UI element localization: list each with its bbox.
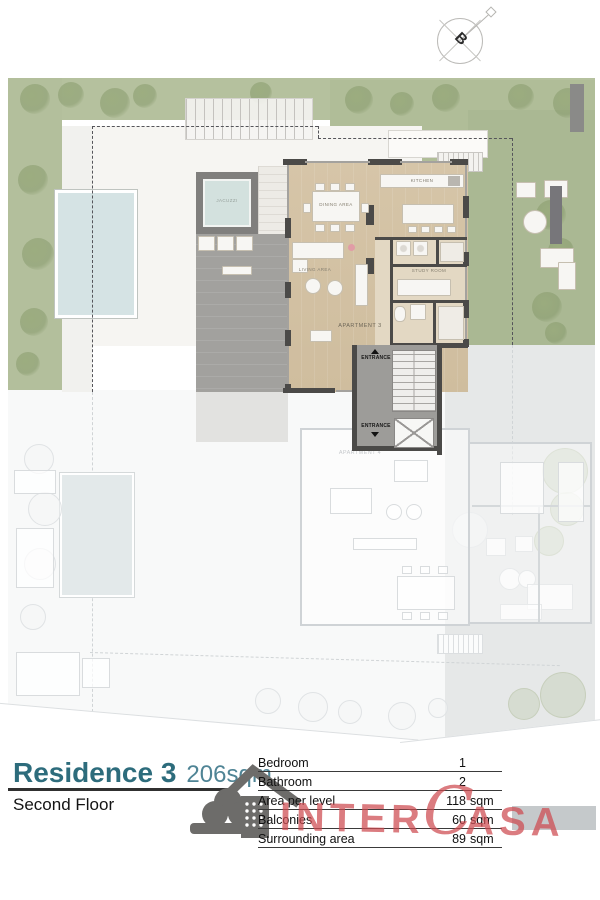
accent-pillow [348, 244, 355, 251]
label-apartment: APARTMENT 3 [328, 324, 392, 330]
tree [20, 308, 48, 336]
watermark: INTERCASA [279, 775, 565, 847]
tree [532, 292, 562, 322]
ghost-chair [402, 566, 412, 574]
ghost-tree-green [540, 672, 586, 718]
tree [58, 82, 84, 108]
lawn-table [523, 210, 547, 234]
floor-label: Second Floor [13, 795, 114, 815]
wall [436, 240, 439, 266]
watermark-text: INTER [279, 797, 425, 840]
entrance-arrow-down [371, 432, 379, 437]
armchair [305, 278, 321, 294]
row-value: 1 [432, 757, 466, 771]
chair [303, 203, 311, 213]
tree [22, 238, 54, 270]
label-jacuzzi: JACUZZI [200, 199, 254, 204]
terrace-faded [196, 392, 288, 442]
bench [222, 266, 252, 275]
ghost-stairs [437, 634, 483, 654]
toilet [394, 306, 406, 322]
stool [434, 226, 443, 233]
label-living: LIVING AREA [294, 268, 336, 273]
wall-slab [550, 186, 562, 244]
planter-box [236, 236, 253, 251]
table-row: Bedroom 1 [258, 753, 502, 772]
lawn-left [8, 78, 62, 390]
pergola [185, 98, 313, 140]
planter-box [217, 236, 234, 251]
ghost-sofa [82, 658, 110, 688]
chair [361, 203, 369, 213]
tree [545, 322, 567, 344]
ghost-sofa [330, 488, 372, 514]
ghost-chair [438, 612, 448, 620]
ghost-island [353, 538, 417, 550]
tree [18, 165, 48, 195]
ghost-bed [500, 462, 544, 514]
planter-box [198, 236, 215, 251]
wall [285, 218, 291, 238]
ghost-table [394, 460, 428, 482]
wall [392, 300, 467, 303]
armchair [327, 280, 343, 296]
tree [390, 92, 414, 116]
tree [16, 352, 40, 376]
stool [408, 226, 417, 233]
chair [330, 224, 340, 232]
boundary-dash [318, 138, 512, 139]
pool [55, 190, 137, 318]
wall [392, 264, 467, 267]
ghost-tree-green [508, 688, 540, 720]
ghost-tree [338, 700, 362, 724]
entrance-label-top: ENTRANCE [360, 356, 392, 361]
ghost-furniture [14, 470, 56, 494]
wall [283, 388, 335, 393]
ghost-tree [388, 702, 416, 730]
ghost-tree [428, 698, 448, 718]
wall [368, 159, 402, 165]
watermark-text: ASA [465, 801, 565, 843]
tree [100, 88, 130, 118]
label-kitchen: KITCHEN [384, 179, 460, 184]
wall [285, 282, 291, 298]
ghost-sofa [16, 652, 80, 696]
chair [315, 224, 325, 232]
tree [20, 84, 50, 114]
window [287, 165, 289, 391]
ghost-tree [28, 492, 62, 526]
boundary-dash [318, 126, 319, 138]
ghost-furniture [16, 528, 54, 588]
washer [396, 241, 411, 256]
label-dining: DINING AREA [312, 203, 360, 208]
wall [437, 345, 442, 455]
stool [447, 226, 456, 233]
kitchen-island [402, 204, 454, 224]
boundary-dash [92, 126, 318, 127]
ghost-chair [406, 504, 422, 520]
ghost-wardrobe [558, 462, 584, 522]
entrance-label-bottom: ENTRANCE [360, 424, 392, 429]
wall [352, 345, 357, 449]
residence-name: Residence 3 [13, 757, 176, 788]
lawn-sofa [558, 262, 576, 290]
side-table [310, 330, 332, 342]
wall [375, 237, 467, 240]
row-label: Bedroom [258, 757, 432, 771]
tree [508, 84, 534, 110]
wall [463, 196, 469, 218]
sofa [292, 242, 344, 259]
window [400, 161, 452, 163]
ghost-chair [438, 566, 448, 574]
lawn-lounger [516, 182, 536, 198]
cabinet [438, 306, 464, 340]
ghost-tree [255, 688, 281, 714]
wall [433, 303, 436, 343]
ghost-chair [420, 612, 430, 620]
shower [410, 304, 426, 320]
elevator [394, 418, 434, 448]
pool-lower [60, 473, 134, 597]
wall [285, 330, 291, 346]
label-study: STUDY ROOM [392, 269, 466, 274]
ghost-dining-table [397, 576, 455, 610]
footer: Residence 3206sqm Second Floor Bedroom 1 [0, 748, 600, 900]
chair [345, 224, 355, 232]
label-apartment-lower: APARTMENT 4 [328, 451, 392, 457]
ghost-wall [538, 507, 540, 622]
desk [397, 279, 451, 296]
closet [440, 242, 464, 262]
washer [413, 241, 428, 256]
ghost-chair [402, 612, 412, 620]
window [305, 161, 370, 163]
wall-slab [570, 84, 584, 132]
console [355, 264, 368, 306]
ghost-chair [420, 566, 430, 574]
entrance-arrow-up [371, 349, 379, 354]
ghost-tree [298, 692, 328, 722]
stool [421, 226, 430, 233]
boundary-dash [92, 126, 93, 392]
terrace [196, 232, 288, 392]
chair [315, 183, 325, 191]
ghost-chair [386, 504, 402, 520]
tree [133, 84, 157, 108]
staircase [392, 350, 436, 412]
compass: B [425, 2, 545, 86]
boundary-dash [512, 138, 513, 345]
chair [345, 183, 355, 191]
tree [345, 86, 373, 114]
tree [432, 84, 460, 112]
ghost-tree [20, 604, 46, 630]
chair [330, 183, 340, 191]
